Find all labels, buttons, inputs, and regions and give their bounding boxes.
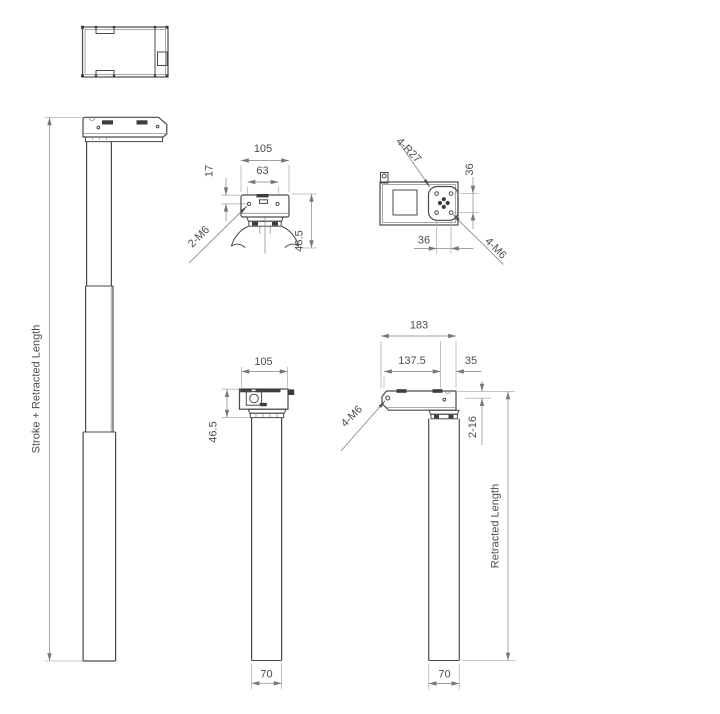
edge-offset-label: 35: [465, 355, 477, 367]
retracted-length-label: Retracted Length: [490, 484, 502, 568]
tube-width-label: 70: [438, 669, 450, 681]
center-offset-label: 137.5: [398, 355, 426, 367]
slot-spacing-label: 63: [256, 165, 268, 177]
hole-spacing-h-label: 36: [418, 235, 430, 247]
overall-width-label: 183: [410, 320, 428, 332]
head-height-label: 46.5: [294, 230, 306, 251]
width-label: 105: [254, 356, 272, 368]
drawing-background: [0, 0, 720, 714]
head-height-label: 46.5: [208, 421, 220, 442]
slot-note-label: 2-16: [467, 416, 479, 438]
head-width-label: 105: [254, 143, 272, 155]
hole-spacing-v-label: 36: [464, 163, 476, 175]
tube-width-label: 70: [260, 669, 272, 681]
hole-offset-label: 17: [204, 165, 216, 177]
stroke-plus-retracted-length-label: Stroke + Retracted Length: [31, 325, 43, 454]
technical-drawing: Stroke + Retracted Length: [0, 0, 720, 714]
